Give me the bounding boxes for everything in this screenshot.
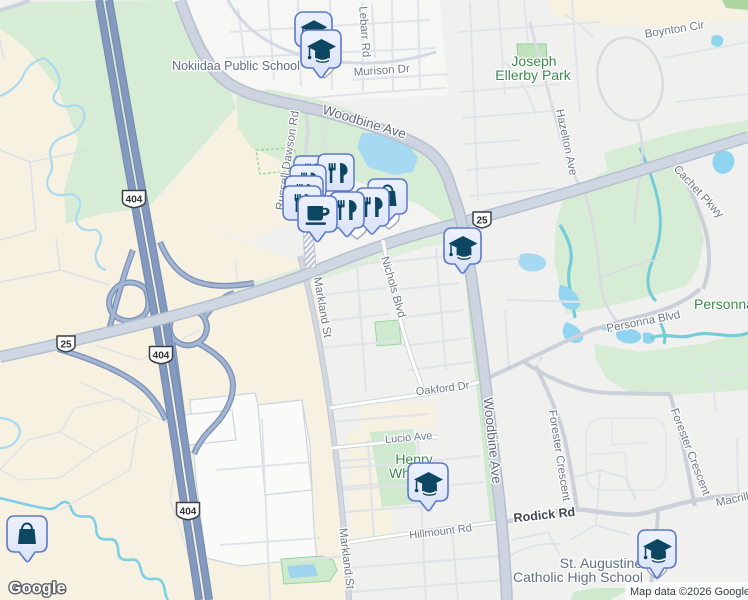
svg-text:Nokiidaa Public School: Nokiidaa Public School xyxy=(172,59,300,73)
svg-text:Ellerby Park: Ellerby Park xyxy=(495,67,571,83)
svg-text:Personna: Personna xyxy=(694,296,748,312)
svg-text:Google: Google xyxy=(9,580,66,597)
svg-text:Catholic High School: Catholic High School xyxy=(513,569,643,585)
svg-text:Map data ©2026 Google: Map data ©2026 Google xyxy=(630,586,748,598)
